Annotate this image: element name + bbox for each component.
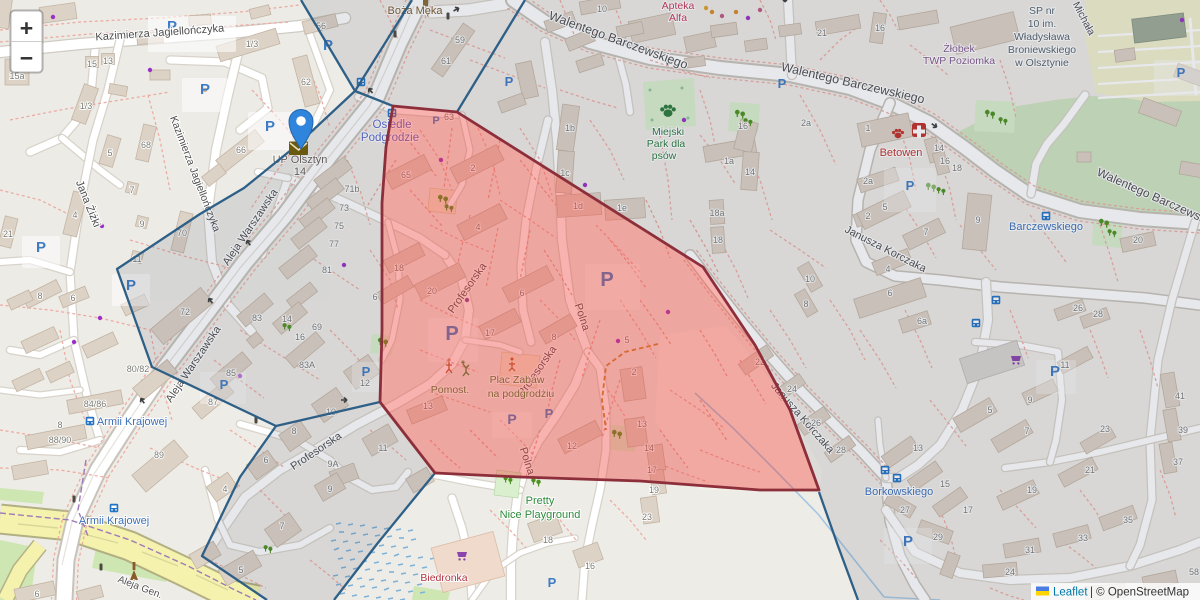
svg-text:9: 9 (139, 219, 144, 229)
svg-text:23: 23 (642, 512, 652, 522)
svg-text:80/82: 80/82 (127, 364, 150, 374)
svg-text:4: 4 (72, 210, 77, 220)
svg-text:89: 89 (154, 450, 164, 460)
svg-text:19: 19 (649, 485, 659, 495)
svg-text:Leaflet: Leaflet (1053, 587, 1088, 599)
svg-text:P: P (36, 239, 46, 256)
svg-text:21: 21 (3, 229, 13, 239)
svg-text:P: P (200, 81, 210, 98)
svg-text:Pretty: Pretty (526, 495, 555, 507)
svg-text:15: 15 (87, 59, 97, 69)
svg-text:1/3: 1/3 (80, 101, 93, 111)
svg-text:P: P (265, 118, 275, 135)
svg-text:62: 62 (301, 77, 311, 87)
svg-text:1/3: 1/3 (246, 39, 259, 49)
svg-text:Nice Playground: Nice Playground (500, 509, 581, 521)
svg-text:Armii Krajowej: Armii Krajowej (97, 416, 167, 428)
svg-text:Armii Krajowej: Armii Krajowej (79, 515, 149, 527)
svg-text:7: 7 (129, 185, 134, 195)
svg-text:4: 4 (222, 484, 227, 494)
svg-text:68: 68 (141, 140, 151, 150)
svg-text:88/90: 88/90 (49, 435, 72, 445)
svg-text:Biedronka: Biedronka (420, 572, 467, 584)
svg-text:66: 66 (236, 145, 246, 155)
svg-text:| © OpenStreetMap: | © OpenStreetMap (1090, 587, 1189, 599)
svg-text:84/86: 84/86 (84, 399, 107, 409)
svg-text:P: P (548, 575, 557, 590)
svg-text:13: 13 (103, 56, 113, 66)
svg-text:18: 18 (543, 535, 553, 545)
svg-text:6: 6 (34, 589, 39, 599)
svg-text:16: 16 (585, 561, 595, 571)
svg-text:8: 8 (37, 291, 42, 301)
svg-text:5: 5 (107, 148, 112, 158)
svg-text:6: 6 (70, 293, 75, 303)
svg-text:8: 8 (57, 420, 62, 430)
svg-text:−: − (20, 45, 33, 71)
svg-text:+: + (20, 15, 33, 41)
